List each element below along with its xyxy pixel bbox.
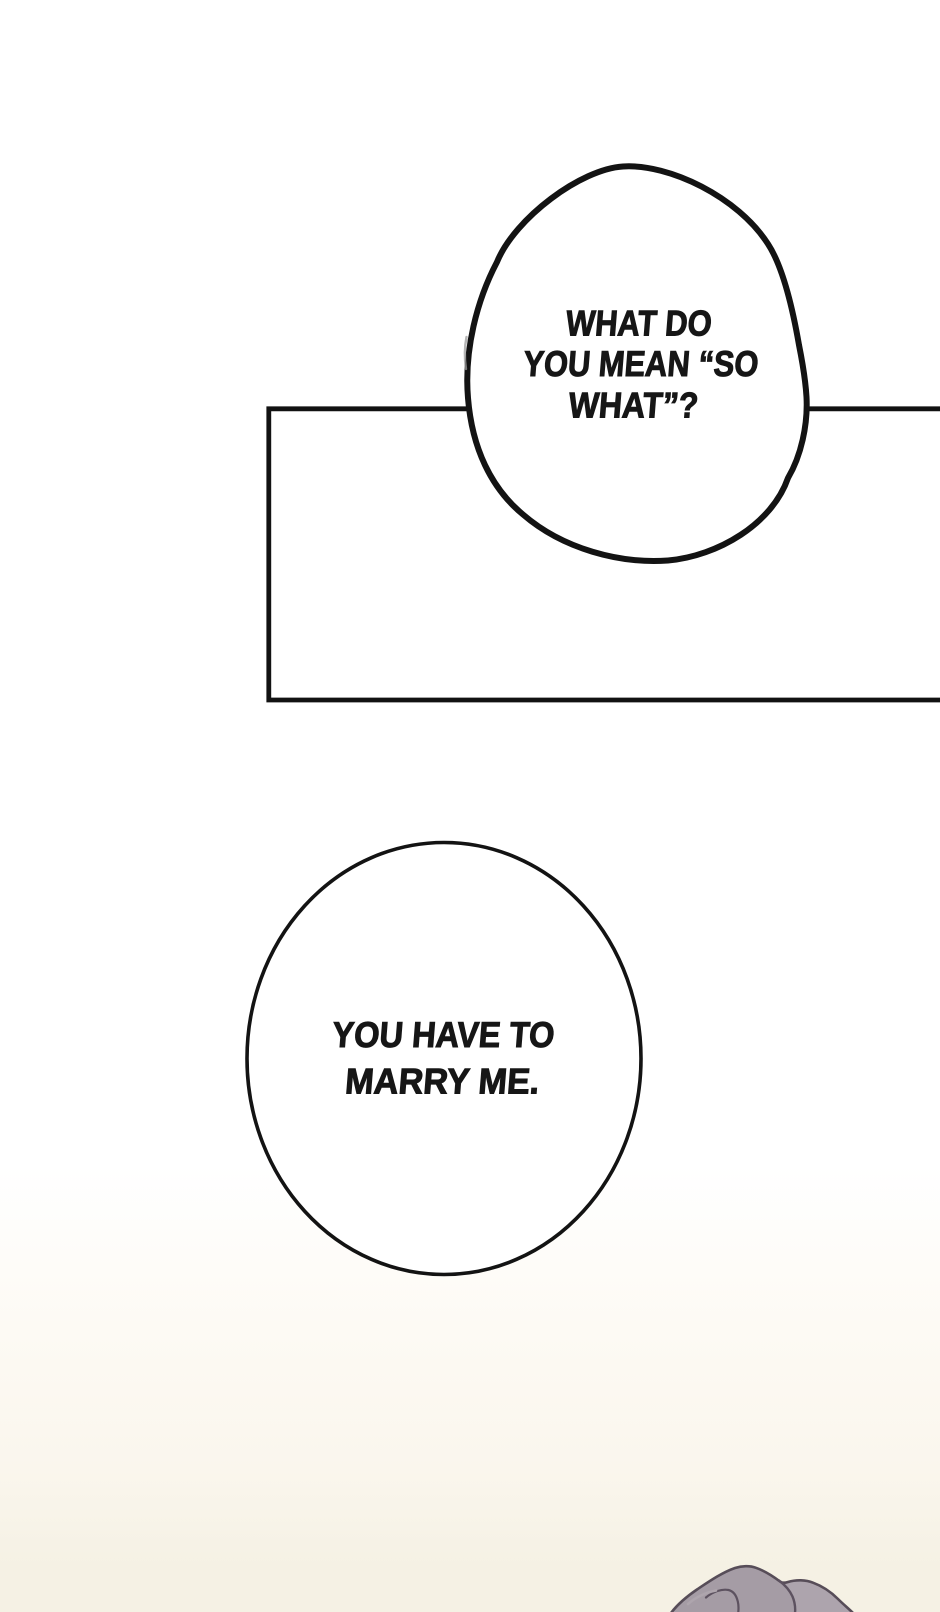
svg-text:WHAT DO: WHAT DO xyxy=(564,304,713,344)
svg-text:YOU MEAN “SO: YOU MEAN “SO xyxy=(522,345,760,385)
svg-text:YOU HAVE TO: YOU HAVE TO xyxy=(331,1016,556,1056)
svg-text:MARRY ME.: MARRY ME. xyxy=(344,1062,541,1102)
svg-text:WHAT”?: WHAT”? xyxy=(567,386,700,426)
